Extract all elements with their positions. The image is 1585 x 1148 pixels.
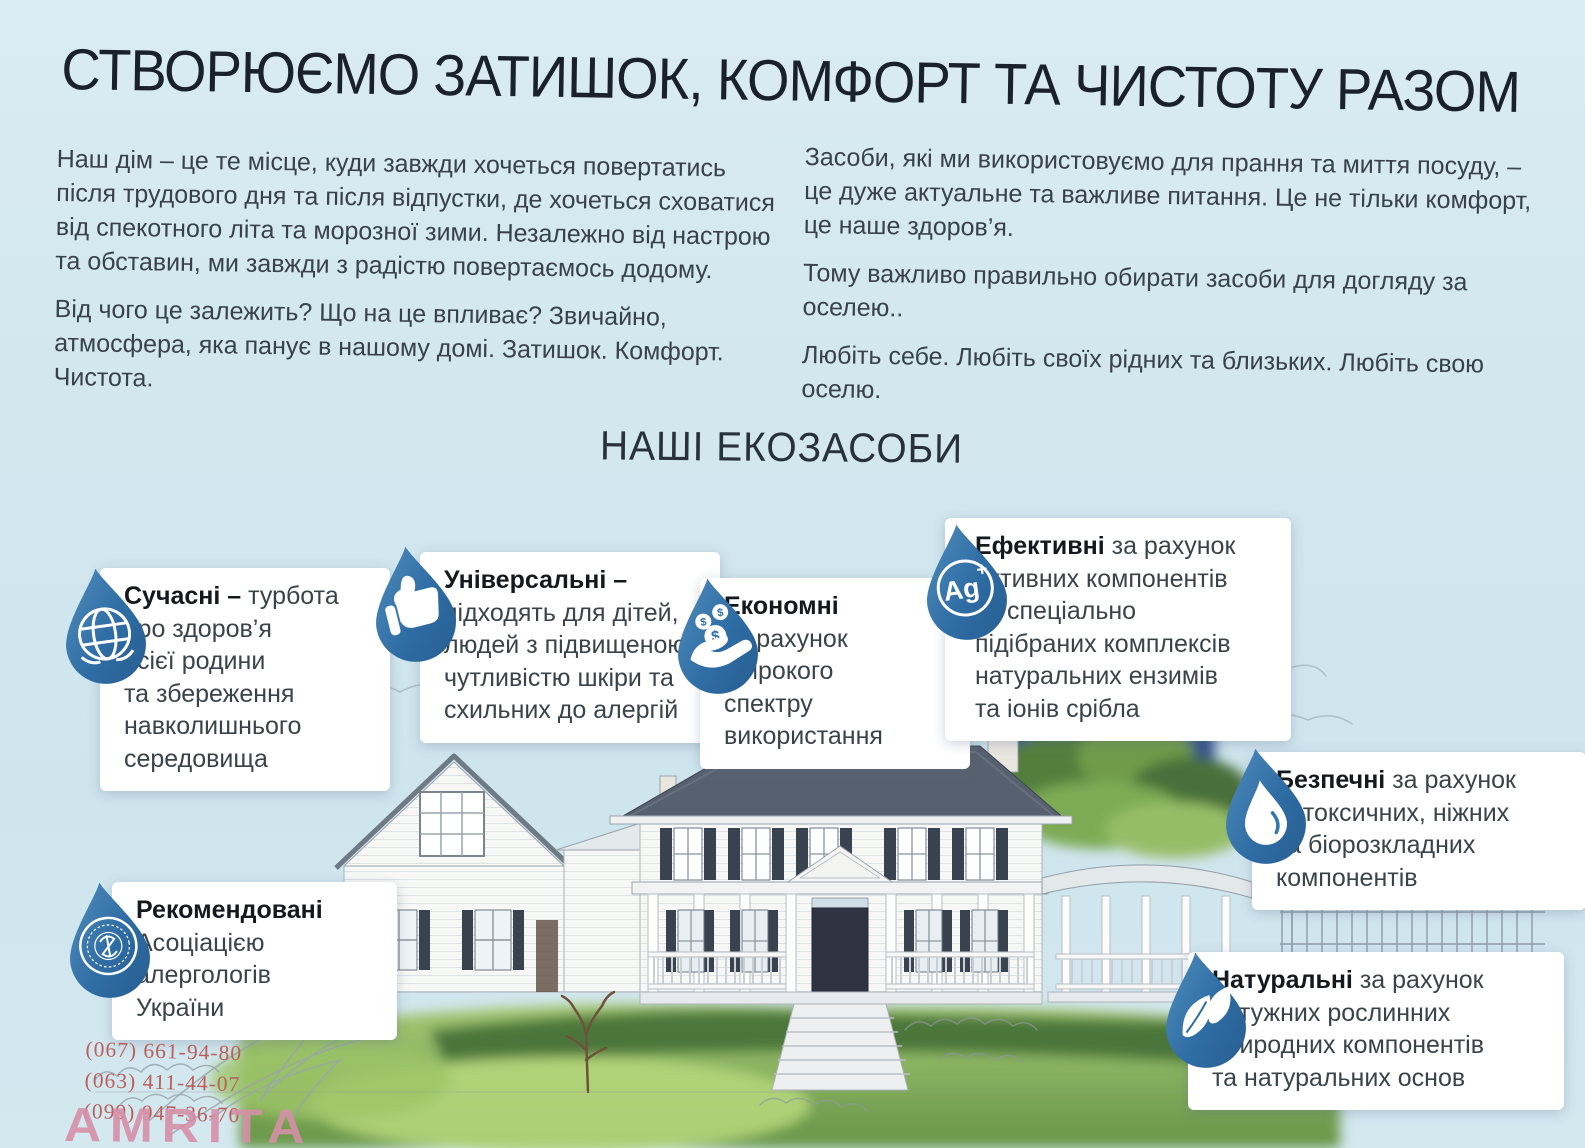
front-door <box>812 908 868 992</box>
intro-left-column: Наш дім – це те місце, куди завжди хочет… <box>53 142 787 418</box>
association-seal-drop-icon <box>52 874 164 1000</box>
card-text: Сучасні – турбота про здоров’я всієї род… <box>124 580 376 775</box>
silver-symbol: Ag <box>942 572 982 607</box>
card-title: Рекомендовані <box>136 896 323 924</box>
phone-number: (063) 411-44-07 <box>84 1065 241 1101</box>
card-effective: Ag + Ефективні за рахунок активних компо… <box>945 518 1291 741</box>
phone-number: (067) 661-94-80 <box>85 1034 242 1070</box>
intro-paragraph: Тому важливо правильно обирати засоби дл… <box>802 256 1551 334</box>
page-title: СТВОРЮЄМО ЗАТИШОК, КОМФОРТ ТА ЧИСТОТУ РА… <box>61 36 1528 126</box>
brochure-page: СТВОРЮЄМО ЗАТИШОК, КОМФОРТ ТА ЧИСТОТУ РА… <box>0 0 1585 1148</box>
intro-paragraph: Наш дім – це те місце, куди завжди хочет… <box>55 142 787 288</box>
card-recommended: Рекомендовані Асоціацією алергологів Укр… <box>112 882 397 1040</box>
leaf-drop-icon <box>1148 944 1260 1070</box>
card-modern: Сучасні – турбота про здоров’я всієї род… <box>100 568 390 791</box>
globe-drop-icon <box>48 560 160 686</box>
thumbs-up-drop-icon <box>358 538 470 664</box>
card-body: підходять для дітей, людей з підвищеною … <box>444 599 686 725</box>
card-text: Безпечні за рахунок нетоксичних, ніжних … <box>1276 764 1572 894</box>
card-natural: Натуральні за рахунок потужних рослинних… <box>1188 952 1564 1110</box>
card-text: Рекомендовані Асоціацією алергологів Укр… <box>136 894 383 1024</box>
silver-ion-drop-icon: Ag + <box>909 516 1021 642</box>
water-drop-icon <box>1208 740 1320 866</box>
intro-right-column: Засоби, які ми використовуємо для прання… <box>801 140 1553 430</box>
intro-paragraph: Любіть себе. Любіть своїх рідних та близ… <box>801 338 1550 416</box>
card-safe: Безпечні за рахунок нетоксичних, ніжних … <box>1252 752 1585 910</box>
connector <box>556 822 644 992</box>
coins-hand-drop-icon: $ $ $ <box>660 570 772 696</box>
section-heading: НАШІ ЕКОЗАСОБИ <box>599 422 962 472</box>
intro-paragraph: Від чого це залежить? Що на це впливає? … <box>53 292 784 404</box>
intro-paragraph: Засоби, які ми використовуємо для прання… <box>804 140 1553 252</box>
card-text: Натуральні за рахунок потужних рослинних… <box>1212 964 1550 1094</box>
front-steps <box>772 1004 910 1090</box>
amrita-watermark: AMRITA <box>63 1098 313 1148</box>
card-title: Універсальні – <box>444 566 627 594</box>
